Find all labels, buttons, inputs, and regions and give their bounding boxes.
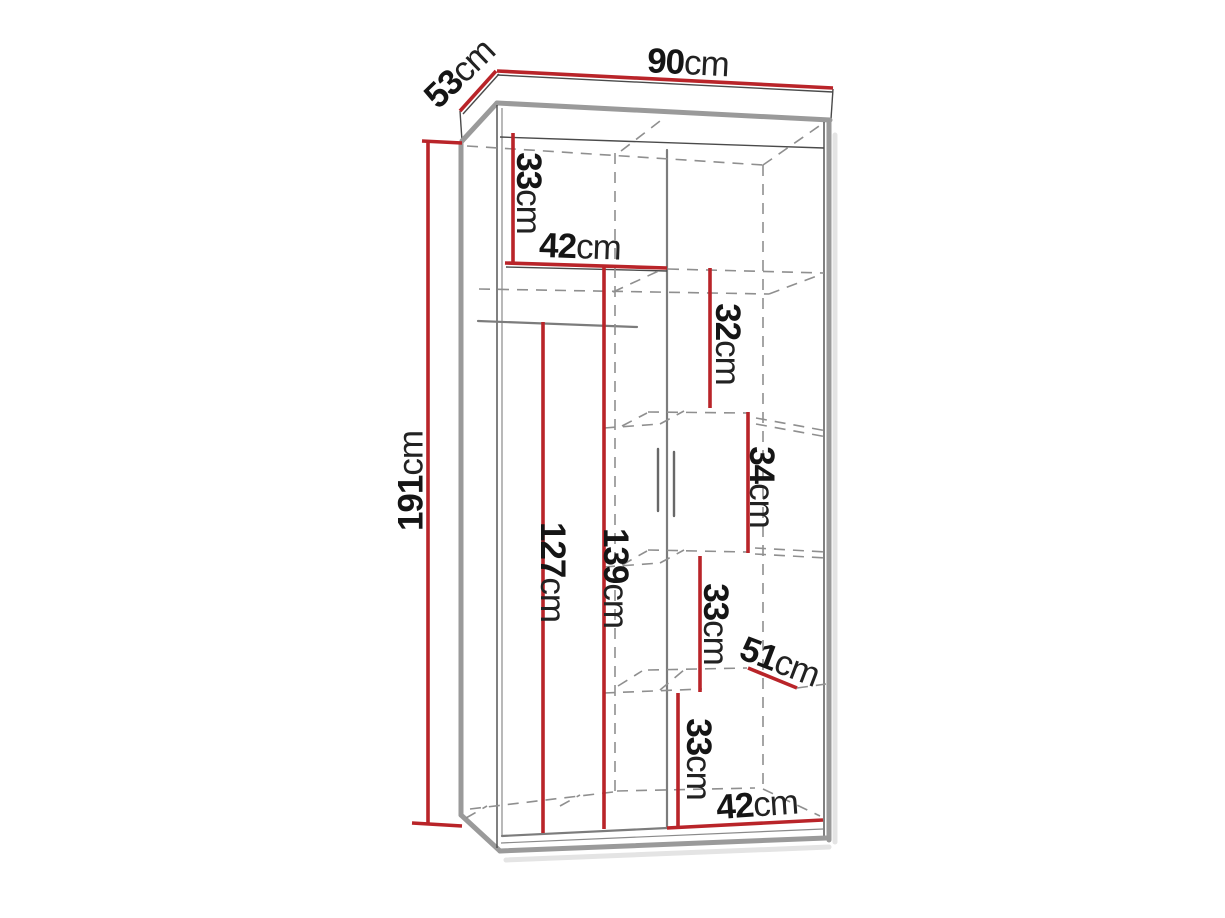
dim-label-hanging-section: 127cm — [533, 522, 572, 622]
dim-label-right-section3: 33cm — [696, 583, 735, 665]
crown-left-cap — [460, 111, 462, 141]
crown-bottom-front-edge — [497, 103, 830, 120]
shelf1-front-right — [668, 269, 824, 273]
shelf1-diag-right — [769, 274, 822, 294]
shelf2-main — [648, 412, 747, 413]
dim-label-overall-depth: 53cm — [417, 31, 503, 116]
shelf4-left — [604, 689, 702, 693]
crown-right-cap — [831, 89, 833, 119]
dimension-labels: 90cm 53cm 191cm 33cm 42cm 32cm 34cm 139c… — [391, 31, 825, 827]
shelf3-main — [648, 550, 747, 552]
dim-label-right-section4: 33cm — [679, 718, 718, 800]
shelf1-back — [479, 289, 769, 294]
right-top-depth-edge — [763, 124, 822, 165]
dim-label-left-shelf-width: 42cm — [539, 226, 622, 268]
left-side-bottom-edge — [461, 815, 500, 851]
dim-label-overall-height: 191cm — [391, 431, 430, 531]
dim-label-overall-width: 90cm — [646, 41, 730, 84]
divider-top-depth-edge — [621, 118, 664, 151]
shelf2-left — [604, 424, 660, 428]
shelf3-right-b — [755, 554, 826, 558]
dim-label-right-section1: 32cm — [708, 303, 747, 385]
shelf3-diag2 — [660, 550, 684, 563]
wardrobe-dimension-diagram: 90cm 53cm 191cm 33cm 42cm 32cm 34cm 139c… — [0, 0, 1225, 918]
interior-floor-edge — [502, 828, 667, 836]
shelf4-diag2 — [660, 670, 684, 690]
shelf3-right-a — [755, 548, 826, 552]
dim-tick-height-bottom — [412, 823, 462, 826]
diagram-canvas: 90cm 53cm 191cm 33cm 42cm 32cm 34cm 139c… — [0, 0, 1225, 918]
dim-label-right-shelf-width: 42cm — [715, 782, 799, 827]
shelf2-diag1 — [622, 413, 647, 426]
dim-label-right-section2: 34cm — [742, 446, 781, 528]
shelf2-right-b — [756, 424, 827, 437]
dim-label-shelf-depth: 51cm — [735, 629, 825, 695]
shelf1-diag-left — [613, 268, 665, 292]
dim-label-left-top-section: 33cm — [509, 152, 548, 234]
dim-tick-height-top — [422, 141, 462, 143]
body-top-edge — [500, 137, 824, 148]
dim-label-left-section: 139cm — [596, 528, 635, 628]
shelf4-diag1 — [618, 671, 642, 686]
shelf2-right-a — [756, 418, 827, 431]
shelf4-main — [648, 668, 747, 670]
